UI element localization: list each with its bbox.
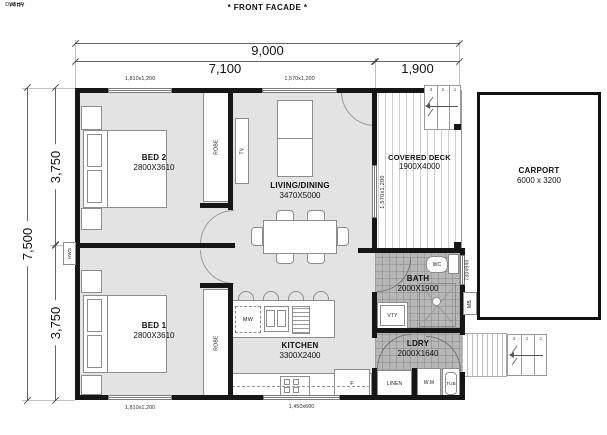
extension-line — [459, 40, 460, 88]
dining-chair — [276, 253, 294, 264]
nightstand — [81, 270, 102, 293]
shower-label: SHR — [0, 0, 37, 10]
window-label-bed1-bottom: 1,810x1,200 — [108, 405, 172, 411]
wall-bath-top — [358, 248, 465, 253]
vanity: VTY — [377, 302, 408, 329]
washing-machine: W.M — [417, 368, 441, 398]
dimension-overall-width: 9,000 — [75, 43, 460, 44]
cooktop-burner — [293, 387, 299, 393]
sink-bowl — [266, 310, 275, 327]
window-bed1-bottom — [108, 395, 172, 400]
dimension-depth-top-value: 3,750 — [49, 144, 63, 189]
dimension-house-width: 7,100 — [75, 61, 375, 62]
carport-outline — [477, 92, 601, 320]
room-label-ldry: LDRY 2000X1640 — [377, 339, 459, 358]
window-living-top — [262, 88, 337, 93]
dimension-depth-top: 3,750 — [55, 88, 56, 245]
room-label-bath: BATH 2000X1900 — [380, 274, 456, 293]
window-label-kitchen-bottom: 1,450x600 — [263, 404, 340, 410]
window-label-bath-side: 730x940 — [463, 252, 473, 288]
dimension-depth-bottom-value: 3,750 — [49, 300, 63, 345]
window-kitchen-bottom — [263, 395, 340, 400]
window-bed2-top — [108, 88, 172, 93]
window-label-living-deck: 1,570x1,200 — [377, 165, 389, 218]
wall-robe1-top — [200, 283, 233, 288]
bar-stool — [288, 291, 304, 300]
bar-stool — [313, 291, 329, 300]
bench-dashed-line — [232, 386, 370, 387]
dining-table — [263, 220, 337, 254]
shower-drain — [432, 297, 441, 306]
dining-chair — [276, 210, 294, 221]
stair-number: 2 — [521, 336, 533, 341]
linen-cupboard: LINEN — [377, 370, 412, 398]
sofa-seat-line — [278, 138, 312, 139]
dining-chair — [337, 227, 349, 246]
room-label-living: LIVING/DINING 3470X5000 — [240, 181, 360, 200]
dimension-depth-bottom: 3,750 — [55, 245, 56, 400]
fridge: F — [334, 369, 370, 398]
plan-title: * FRONT FACADE * — [75, 3, 460, 12]
stair-tread-line — [437, 86, 438, 129]
floor-plan: * FRONT FACADE * 9,000 7,100 1,900 7,500… — [0, 0, 607, 435]
dishwasher — [292, 306, 310, 334]
meter-box: MB — [463, 292, 477, 315]
wall-right-lower — [460, 372, 465, 400]
wall-bedrooms — [75, 243, 235, 248]
room-label-kitchen: KITCHEN 3300X2400 — [240, 341, 360, 360]
nightstand — [81, 208, 102, 230]
room-label-bed2: BED 2 2800X3610 — [80, 153, 228, 172]
dimension-deck-width: 1,900 — [375, 61, 460, 62]
dimension-overall-depth: 7,500 — [27, 88, 28, 400]
nightstand — [81, 106, 102, 130]
laundry-tub: TUB — [442, 368, 460, 398]
extension-line — [22, 88, 75, 89]
carport-name: CARPORT — [477, 166, 601, 176]
dimension-overall-depth-value: 7,500 — [21, 222, 35, 267]
room-label-deck: COVERED DECK 1900X4000 — [378, 153, 461, 172]
extension-line — [22, 400, 75, 401]
tv-unit: TV — [235, 118, 249, 184]
wall-linen-right — [412, 368, 417, 400]
rear-landing — [461, 333, 507, 377]
wall-bed1-right — [228, 283, 233, 400]
bar-stool — [238, 291, 254, 300]
stair-number: 1 — [535, 336, 547, 341]
stair-tread-line — [449, 86, 450, 129]
microwave: MW — [235, 306, 261, 333]
dining-chair — [307, 253, 325, 264]
stair-number: 2 — [437, 87, 449, 92]
robe-bed1: ROBE — [203, 289, 230, 397]
room-label-bed1: BED 1 2800X3610 — [80, 321, 228, 340]
wall-bed2-right — [228, 88, 233, 210]
stair-arrow — [514, 355, 543, 356]
carport-size: 6000 x 3200 — [477, 176, 601, 186]
deck-post — [454, 242, 461, 248]
robe-bed2: ROBE — [203, 92, 230, 202]
sink-bowl — [277, 310, 286, 327]
hot-water-system: HWS — [63, 242, 76, 265]
wall-robe2-bottom — [200, 203, 233, 208]
extension-line — [75, 40, 76, 88]
wall-bath-ldry — [375, 328, 463, 333]
pillow — [87, 170, 102, 203]
dining-chair — [307, 210, 325, 221]
cooktop-burner — [284, 387, 290, 393]
toilet-cistern — [448, 254, 459, 274]
stair-number: 1 — [449, 87, 461, 92]
dining-chair — [251, 227, 263, 246]
nightstand — [81, 375, 102, 395]
stair-number: 3 — [508, 336, 520, 341]
wall-hall-ldry — [372, 368, 377, 400]
stair-arrow — [430, 106, 458, 107]
cooktop-burner — [293, 379, 299, 385]
toilet: WC — [426, 256, 448, 273]
window-label-bed2-top: 1,810x1,200 — [108, 76, 172, 82]
room-label-carport: CARPORT 6000 x 3200 — [477, 166, 601, 185]
deck-post — [454, 124, 461, 130]
cooktop-burner — [284, 379, 290, 385]
stair-number: 3 — [425, 87, 437, 92]
bar-stool — [263, 291, 279, 300]
window-label-living-top: 1,570x1,200 — [262, 76, 337, 82]
